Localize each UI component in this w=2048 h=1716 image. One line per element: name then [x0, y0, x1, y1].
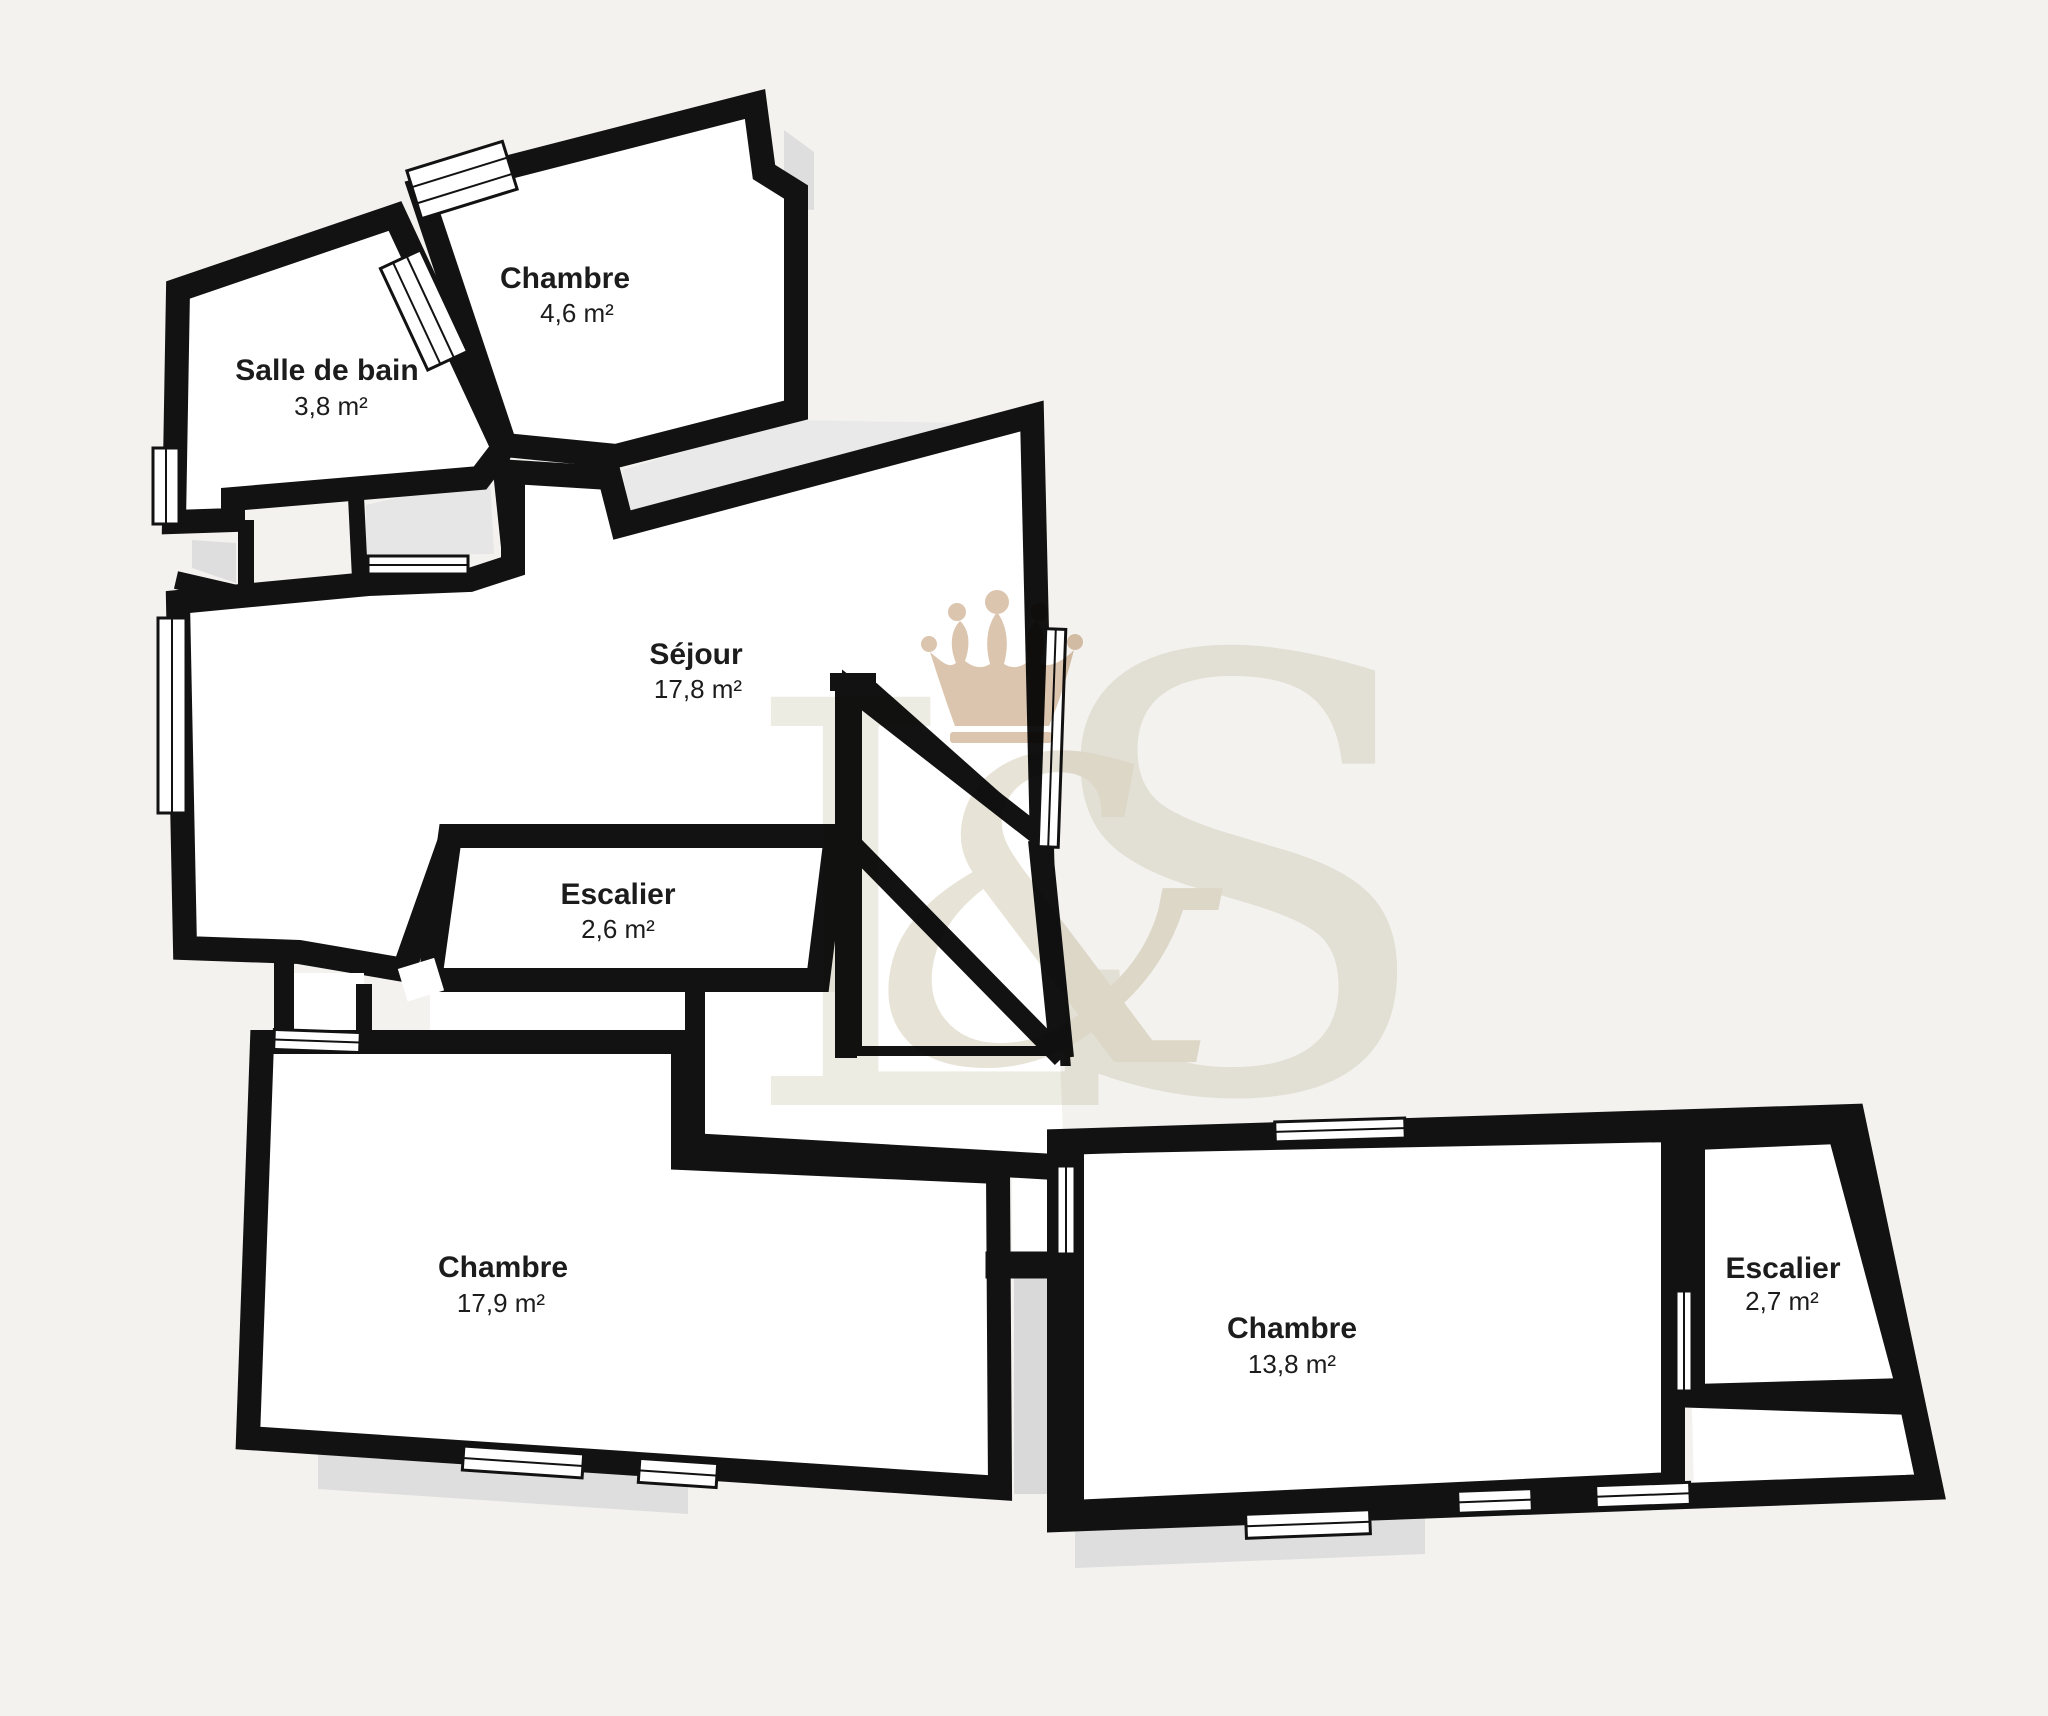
floor-plan-drawing: Salle de bain 3,8 m² Chambre 4,6 m² Séjo…: [0, 0, 2048, 1716]
label-escalier-droit: Escalier: [1725, 1252, 1840, 1285]
label-escalier-haut: Escalier: [560, 878, 675, 911]
area-salle-de-bain: 3,8 m²: [294, 391, 368, 421]
shadow-between-buildings: [1014, 1274, 1048, 1494]
wall-passage-connector: [986, 1252, 1078, 1278]
label-salle-de-bain: Salle de bain: [235, 354, 418, 387]
window-chambre-gauche-2: [638, 1458, 717, 1487]
label-chambre-droite: Chambre: [1227, 1312, 1357, 1345]
window-chambre-droite-bottom-2: [1458, 1489, 1533, 1514]
area-chambre-haut: 4,6 m²: [540, 298, 614, 328]
floor-plan: Salle de bain 3,8 m² Chambre 4,6 m² Séjo…: [0, 0, 2048, 1716]
door-escalier-droit: [1676, 1291, 1692, 1391]
area-escalier-haut: 2,6 m²: [581, 914, 655, 944]
window-niche: [368, 556, 468, 574]
wall-escalier-droit-bottom: [1670, 1396, 1912, 1404]
window-chambre-droite-bottom-3: [1596, 1482, 1691, 1507]
label-chambre-haut: Chambre: [500, 262, 630, 295]
wall-niche-right: [500, 452, 512, 566]
area-sejour: 17,8 m²: [654, 674, 742, 704]
label-chambre-gauche: Chambre: [438, 1251, 568, 1284]
window-left-lower: [158, 618, 186, 813]
area-escalier-droit: 2,7 m²: [1745, 1286, 1819, 1316]
door-chambre-gauche-top: [274, 1030, 361, 1053]
area-chambre-gauche: 17,9 m²: [457, 1288, 545, 1318]
watermark-ampersand: &: [872, 673, 1246, 1162]
window-chambre-droite-bottom-1: [1246, 1510, 1371, 1539]
label-sejour: Séjour: [649, 638, 743, 671]
area-chambre-droite: 13,8 m²: [1248, 1349, 1336, 1379]
window-left-upper: [153, 448, 179, 524]
watermark: L S &: [740, 533, 1441, 1238]
